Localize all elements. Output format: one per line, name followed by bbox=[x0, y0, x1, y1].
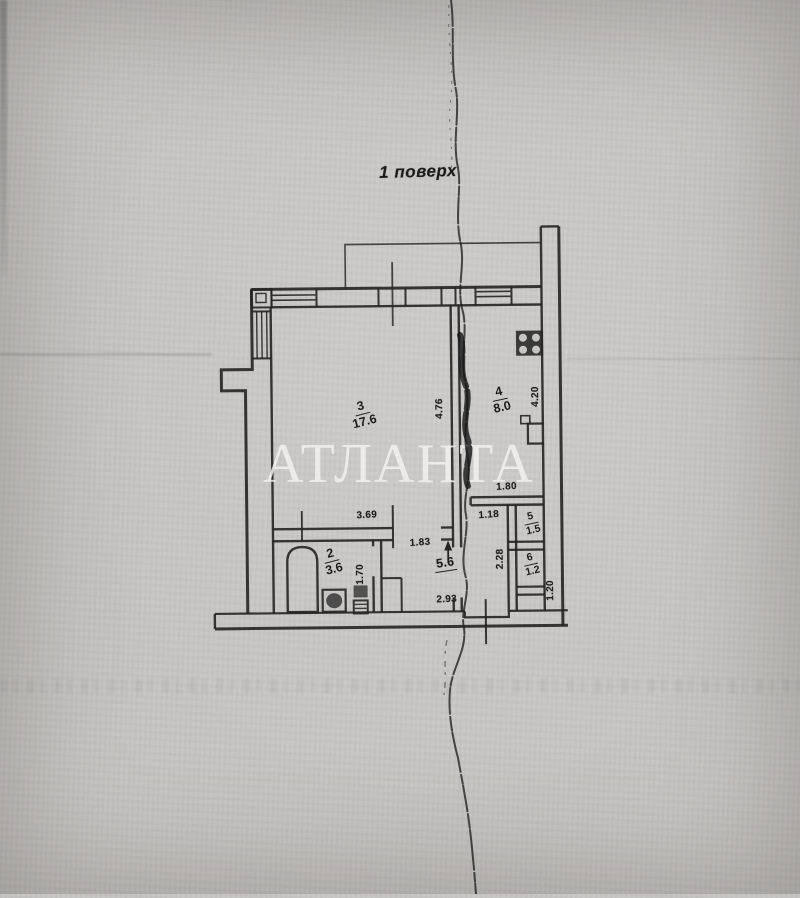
scanned-floor-plan-page: 1 поверх bbox=[0, 0, 800, 894]
fold-crease-line bbox=[0, 0, 800, 894]
